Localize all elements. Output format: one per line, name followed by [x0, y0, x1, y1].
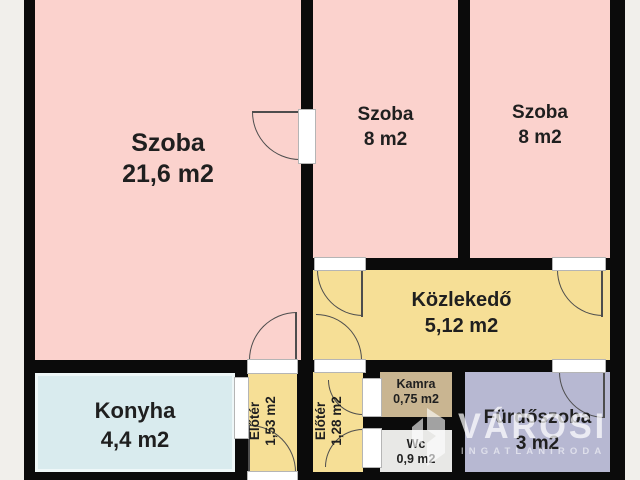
- door-szoba-right-to-kozlekedo: [553, 258, 605, 270]
- room-szoba-right: [470, 0, 610, 258]
- door-szoba-large-to-szoba-middle: [299, 110, 315, 163]
- room-szoba-large: [35, 0, 301, 360]
- door-konyha-to-eloter-1: [235, 378, 248, 438]
- floor-plan: Szoba 21,6 m2 Szoba 8 m2 Szoba 8 m2 Közl…: [0, 0, 640, 480]
- door-kozlekedo-to-furdoszoba: [553, 360, 605, 372]
- door-leaf-6: [603, 372, 605, 418]
- door-eloter-2-to-kamra: [363, 379, 381, 416]
- room-kamra: [380, 372, 452, 417]
- room-konyha: [35, 373, 235, 472]
- door-leaf-1: [252, 111, 301, 113]
- door-leaf-2: [295, 312, 297, 360]
- door-kozlekedo-to-eloter-2: [315, 360, 365, 372]
- room-szoba-middle: [313, 0, 458, 258]
- door-entrance: [248, 472, 297, 480]
- door-leaf-entrance: [248, 425, 250, 472]
- door-eloter-2-to-wc: [363, 429, 381, 467]
- door-szoba-large-to-eloter-1: [248, 360, 297, 373]
- door-leaf-3: [361, 270, 363, 317]
- room-wc: [380, 430, 452, 472]
- door-leaf-4: [601, 270, 603, 317]
- door-szoba-middle-to-kozlekedo: [315, 258, 365, 270]
